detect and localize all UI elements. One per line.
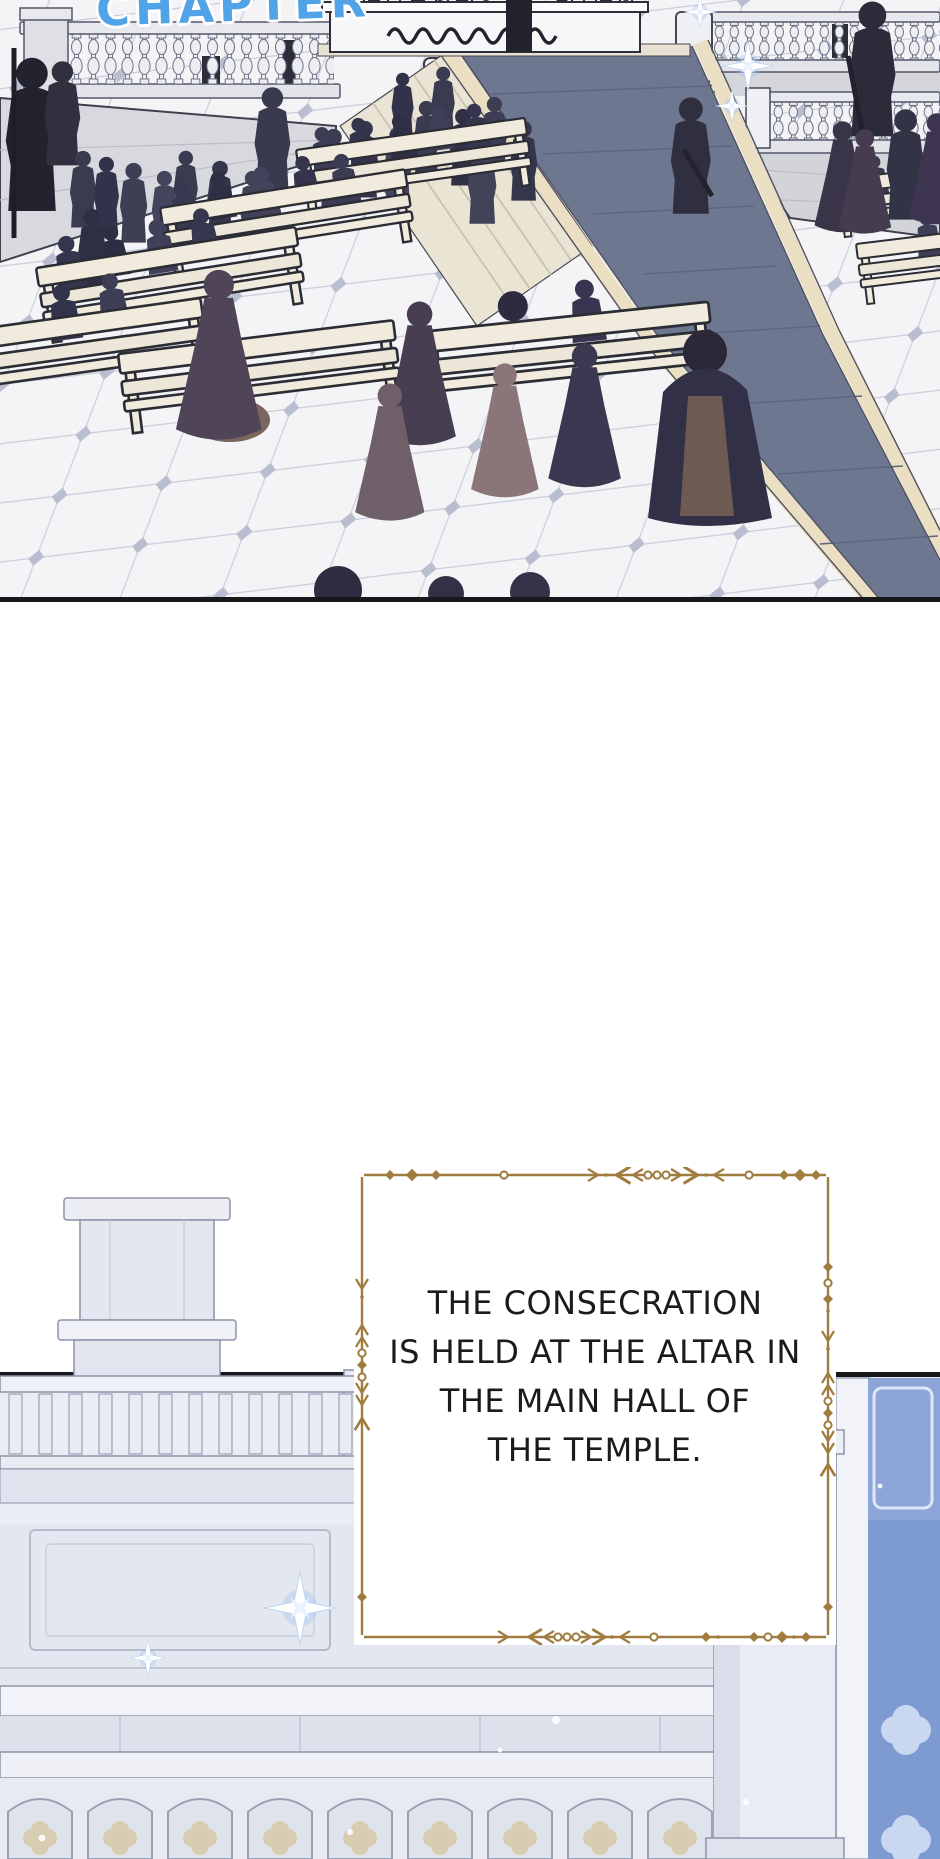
narration-line: THE CONSECRATION: [364, 1279, 826, 1328]
narration-line: IS HELD AT THE ALTAR IN: [364, 1328, 826, 1377]
stained-glass-panel: [836, 1378, 940, 1859]
narration-line: THE MAIN HALL OF: [364, 1377, 826, 1426]
border-ornaments-bottom: [498, 1629, 811, 1645]
arched-balustrade: [0, 1686, 726, 1859]
panel-plaza-ceremony: CHAPTER: [0, 0, 940, 602]
left-altar-structure: [0, 1198, 370, 1503]
comic-page: CHAPTER: [0, 0, 940, 1859]
narration-line: THE TEMPLE.: [364, 1426, 826, 1475]
narration-box: THE CONSECRATION IS HELD AT THE ALTAR IN…: [354, 1167, 836, 1645]
stone-railing: [0, 1370, 370, 1503]
plaza-scene-art: [0, 0, 940, 602]
narration-text: THE CONSECRATION IS HELD AT THE ALTAR IN…: [364, 1279, 826, 1475]
panel-border: [0, 597, 940, 602]
altar: [318, 0, 690, 56]
